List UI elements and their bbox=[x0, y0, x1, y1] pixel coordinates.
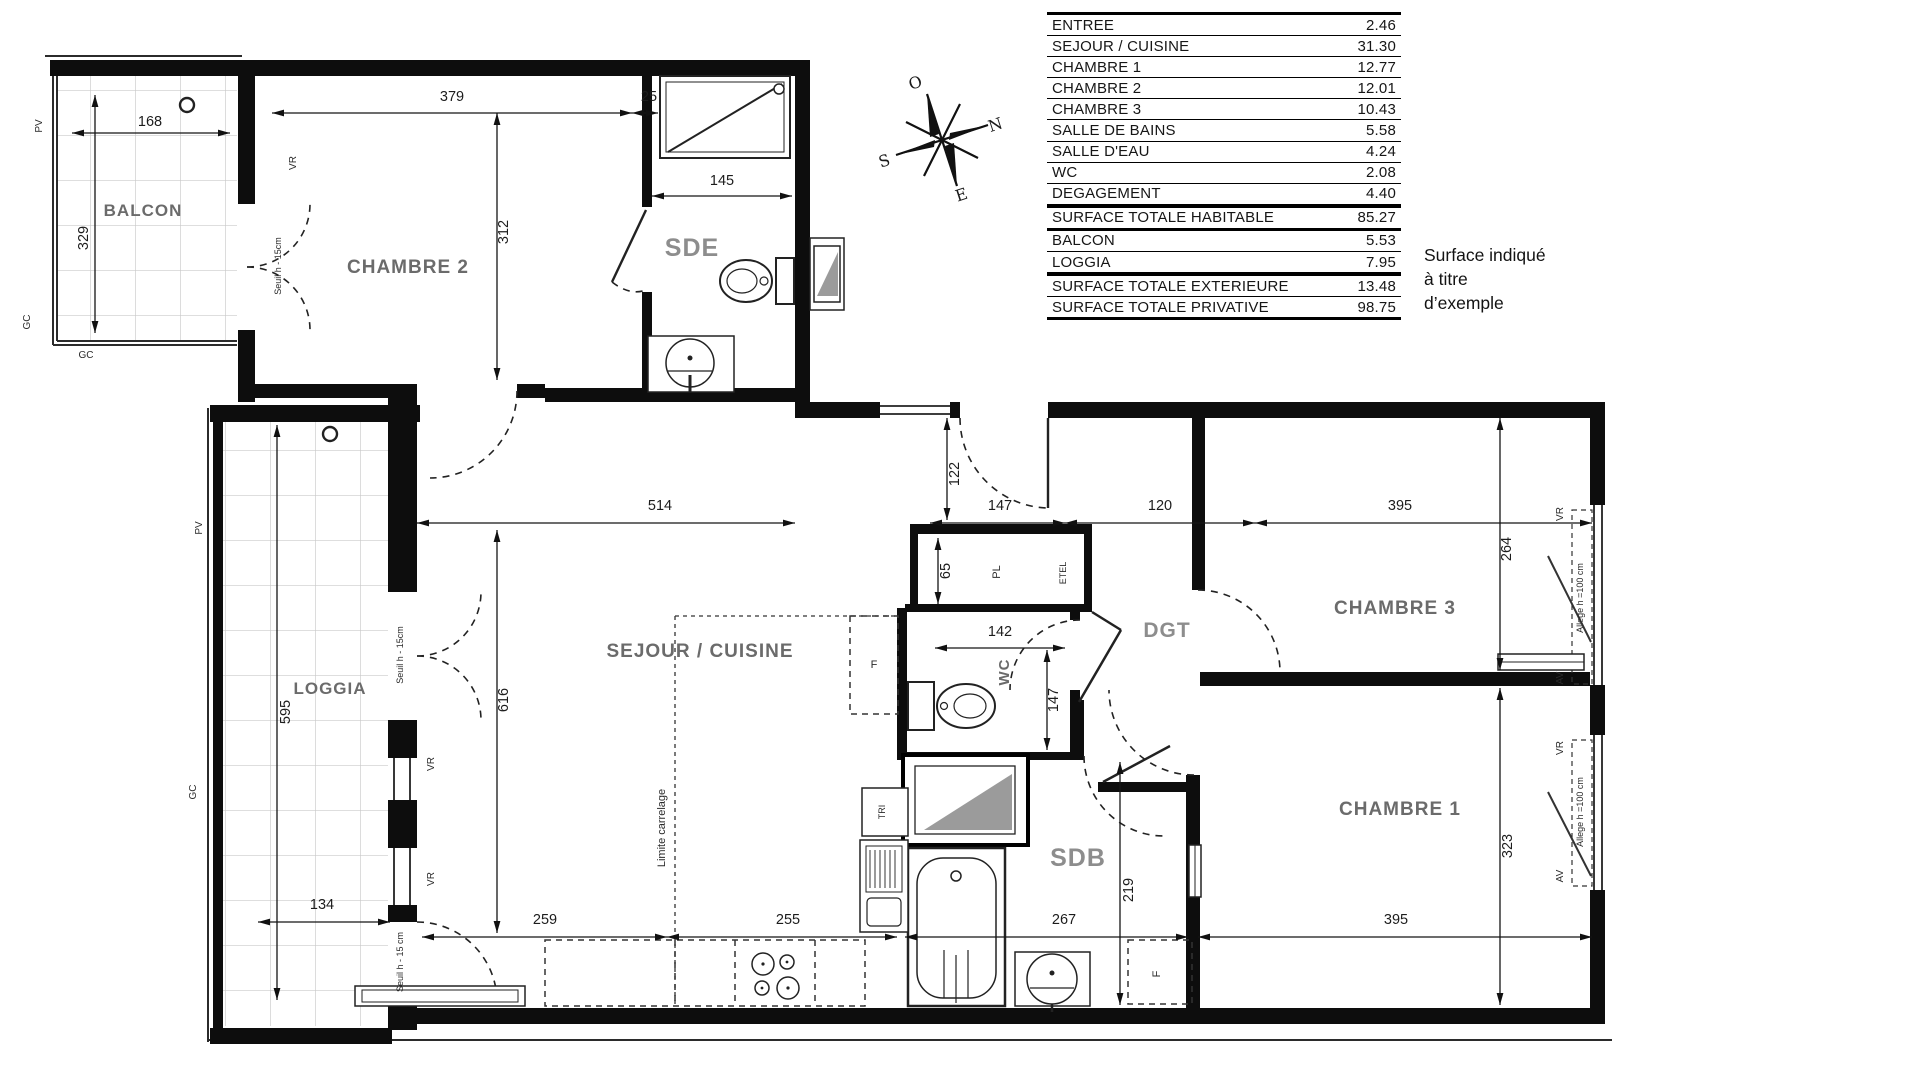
dim-balcon-w: 168 bbox=[138, 114, 162, 130]
compass-west-label: O bbox=[906, 72, 924, 94]
table-row: WC 2.08 bbox=[1047, 163, 1401, 184]
ann-vr-ch2: VR bbox=[288, 156, 299, 170]
dim-ch2-h: 312 bbox=[496, 220, 512, 244]
dim-sdb-w: 267 bbox=[1052, 912, 1076, 928]
table-row-label: CHAMBRE 1 bbox=[1047, 59, 1141, 76]
table-row-label: SALLE DE BAINS bbox=[1047, 122, 1176, 139]
surface-example-note: Surface indiqué à titre d’exemple bbox=[1424, 244, 1546, 315]
ann-gc-balcon-side: GC bbox=[22, 315, 33, 330]
toilet-icon-wc bbox=[908, 682, 995, 730]
table-row-total-exterieure: SURFACE TOTALE EXTERIEURE 13.48 bbox=[1047, 273, 1401, 297]
table-row-label: SURFACE TOTALE HABITABLE bbox=[1047, 209, 1274, 226]
radiator-ch1-icon bbox=[1189, 845, 1201, 897]
table-row: CHAMBRE 1 12.77 bbox=[1047, 57, 1401, 78]
dim-loggia-h: 595 bbox=[278, 700, 294, 724]
ann-av-ch1: AV bbox=[1555, 869, 1566, 882]
dim-sde-w: 145 bbox=[710, 173, 734, 189]
dim-loggia-w: 134 bbox=[310, 897, 334, 913]
compass-rose: O N S E bbox=[876, 72, 1005, 206]
dim-balcon-h: 329 bbox=[76, 226, 92, 250]
dim-kitchen-a: 259 bbox=[533, 912, 557, 928]
room-label-chambre3: CHAMBRE 3 bbox=[1334, 598, 1456, 619]
toilet-icon-sde bbox=[720, 258, 794, 304]
table-row-label: LOGGIA bbox=[1047, 254, 1111, 271]
room-label-sdb: SDB bbox=[1050, 844, 1106, 872]
dim-wc-d: 147 bbox=[1046, 688, 1062, 712]
table-row-value: 31.30 bbox=[1357, 38, 1401, 55]
room-label-wc: WC bbox=[996, 659, 1013, 686]
table-row: ENTREE 2.46 bbox=[1047, 15, 1401, 36]
room-label-sde: SDE bbox=[665, 234, 719, 262]
table-row-label: ENTREE bbox=[1047, 17, 1114, 34]
shower-icon bbox=[660, 76, 790, 158]
table-row-label: SURFACE TOTALE EXTERIEURE bbox=[1047, 278, 1289, 295]
room-label-loggia: LOGGIA bbox=[293, 679, 366, 698]
bathtub-icon bbox=[908, 848, 1005, 1006]
floor-plan-drawing: 168 329 379 25 312 145 514 122 147 120 3… bbox=[0, 0, 1920, 1080]
dim-ch1-h: 323 bbox=[1500, 834, 1516, 858]
table-row-value: 5.53 bbox=[1366, 232, 1401, 249]
ann-allege-ch1: Allege h =100 cm bbox=[1575, 777, 1585, 847]
room-label-sejour: SEJOUR / CUISINE bbox=[606, 641, 793, 662]
compass-north-label: N bbox=[986, 114, 1005, 136]
dim-ch3-w: 395 bbox=[1388, 498, 1412, 514]
basin-niche-icon bbox=[814, 246, 840, 302]
table-row-value: 5.58 bbox=[1366, 122, 1401, 139]
ann-seuil-loggia-1: Seuil h - 15cm bbox=[395, 626, 405, 684]
ann-pv-loggia: PV bbox=[194, 521, 205, 535]
dim-sdb-h: 219 bbox=[1121, 878, 1137, 902]
dim-entry-h: 122 bbox=[947, 462, 963, 486]
vanity-icon-sdb bbox=[903, 755, 1028, 845]
ann-vr-ch3: VR bbox=[1555, 507, 1566, 521]
ann-vr-ch1: VR bbox=[1555, 741, 1566, 755]
dim-kitchen-b: 255 bbox=[776, 912, 800, 928]
table-row-label: SURFACE TOTALE PRIVATIVE bbox=[1047, 299, 1269, 316]
bench-sejour-icon bbox=[355, 986, 525, 1006]
table-row-label: BALCON bbox=[1047, 232, 1115, 249]
ann-vr-sejour-1: VR bbox=[426, 757, 437, 771]
table-row-label: SALLE D'EAU bbox=[1047, 143, 1150, 160]
table-row: CHAMBRE 3 10.43 bbox=[1047, 99, 1401, 120]
ann-tri: TRI bbox=[877, 805, 887, 820]
room-label-balcon: BALCON bbox=[104, 201, 183, 220]
table-row-value: 7.95 bbox=[1366, 254, 1401, 271]
table-row: SEJOUR / CUISINE 31.30 bbox=[1047, 36, 1401, 57]
compass-south-label: S bbox=[876, 150, 892, 171]
ann-limite-carrelage: Limite carrelage bbox=[656, 789, 668, 867]
room-label-dgt: DGT bbox=[1143, 619, 1190, 642]
table-row-value: 85.27 bbox=[1357, 209, 1401, 226]
dim-wc-w: 142 bbox=[988, 624, 1012, 640]
table-row-label: WC bbox=[1047, 164, 1077, 181]
ann-pv-balcon: PV bbox=[34, 119, 45, 133]
dim-entry-w: 147 bbox=[988, 498, 1012, 514]
table-row-value: 4.40 bbox=[1366, 185, 1401, 202]
ann-gc-balcon: GC bbox=[79, 350, 94, 361]
dim-ch3-h: 264 bbox=[1499, 537, 1515, 561]
table-row: CHAMBRE 2 12.01 bbox=[1047, 78, 1401, 99]
table-row: DEGAGEMENT 4.40 bbox=[1047, 184, 1401, 205]
dim-dgt-w: 120 bbox=[1148, 498, 1172, 514]
table-row-value: 12.77 bbox=[1357, 59, 1401, 76]
room-label-chambre2: CHAMBRE 2 bbox=[347, 257, 469, 278]
table-row: SALLE D'EAU 4.24 bbox=[1047, 142, 1401, 163]
ann-seuil-ch2: Seuil h - 15cm bbox=[273, 237, 283, 295]
ann-f-sdb: F bbox=[1151, 970, 1163, 977]
ann-allege-ch3: Allege h =100 cm bbox=[1575, 563, 1585, 633]
table-row-value: 4.24 bbox=[1366, 143, 1401, 160]
washbasin-icon-sde bbox=[648, 336, 734, 392]
ann-seuil-loggia-2: Seuil h - 15 cm bbox=[395, 932, 405, 992]
table-row-value: 10.43 bbox=[1357, 101, 1401, 118]
ann-av-ch3: AV bbox=[1555, 671, 1566, 684]
table-row-value: 98.75 bbox=[1357, 299, 1401, 316]
table-row-label: SEJOUR / CUISINE bbox=[1047, 38, 1189, 55]
ann-f-kitchen: F bbox=[871, 659, 878, 671]
table-row-label: CHAMBRE 2 bbox=[1047, 80, 1141, 97]
dim-pl-d: 65 bbox=[938, 563, 954, 579]
table-row-total-privative: SURFACE TOTALE PRIVATIVE 98.75 bbox=[1047, 297, 1401, 320]
table-row-value: 13.48 bbox=[1357, 278, 1401, 295]
dim-sejour-h: 616 bbox=[496, 688, 512, 712]
ann-gc-loggia: GC bbox=[188, 785, 199, 800]
floorplan-page: 168 329 379 25 312 145 514 122 147 120 3… bbox=[0, 0, 1920, 1080]
stove-icon bbox=[752, 953, 799, 999]
table-row: LOGGIA 7.95 bbox=[1047, 252, 1401, 273]
table-row-value: 12.01 bbox=[1357, 80, 1401, 97]
radiator-ch3-icon bbox=[1498, 654, 1584, 670]
dim-ch2-w: 379 bbox=[440, 89, 464, 105]
table-row-label: DEGAGEMENT bbox=[1047, 185, 1161, 202]
table-row-value: 2.08 bbox=[1366, 164, 1401, 181]
table-row-total-habitable: SURFACE TOTALE HABITABLE 85.27 bbox=[1047, 205, 1401, 231]
table-row-label: CHAMBRE 3 bbox=[1047, 101, 1141, 118]
ann-vr-sejour-2: VR bbox=[426, 872, 437, 886]
room-label-chambre1: CHAMBRE 1 bbox=[1339, 799, 1461, 820]
washbasin-icon-sdb bbox=[1015, 952, 1090, 1012]
dim-sejour-w: 514 bbox=[648, 498, 672, 514]
ann-pl: PL bbox=[991, 565, 1003, 578]
dim-ch1-w: 395 bbox=[1384, 912, 1408, 928]
table-row: BALCON 5.53 bbox=[1047, 231, 1401, 252]
ann-etel: ETEL bbox=[1058, 562, 1068, 585]
table-row: SALLE DE BAINS 5.58 bbox=[1047, 120, 1401, 141]
compass-east-label: E bbox=[953, 184, 970, 206]
surface-table: ENTREE 2.46 SEJOUR / CUISINE 31.30 CHAMB… bbox=[1047, 12, 1401, 320]
dim-ch2-off: 25 bbox=[641, 89, 657, 105]
table-row-value: 2.46 bbox=[1366, 17, 1401, 34]
